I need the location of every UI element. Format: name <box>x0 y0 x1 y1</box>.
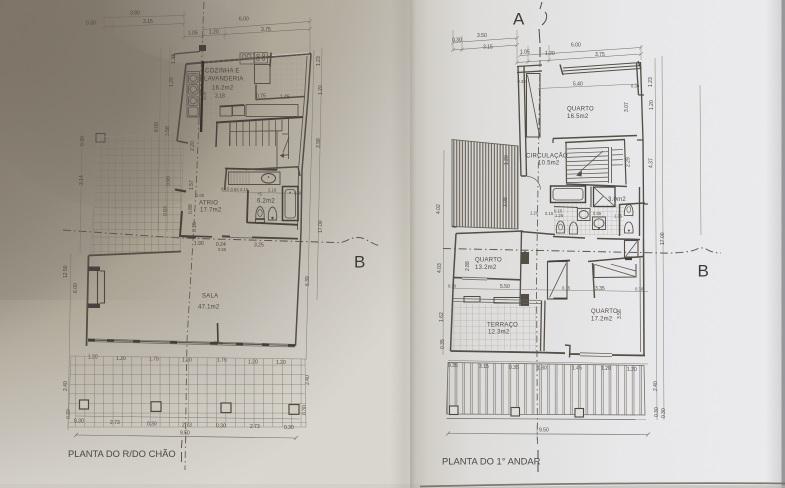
svg-text:12.3m2: 12.3m2 <box>488 330 510 336</box>
svg-text:3.25: 3.25 <box>254 243 264 249</box>
svg-text:QUARTO: QUARTO <box>567 107 594 113</box>
svg-text:3.56: 3.56 <box>617 309 623 319</box>
svg-text:3.05: 3.05 <box>202 91 207 100</box>
svg-text:2.18: 2.18 <box>268 188 277 193</box>
svg-text:COZINHA E: COZINHA E <box>205 69 240 75</box>
svg-text:0.30: 0.30 <box>216 423 226 429</box>
svg-text:3.0m2: 3.0m2 <box>608 197 626 203</box>
svg-text:0.30: 0.30 <box>86 21 96 27</box>
svg-text:2.88: 2.88 <box>465 261 471 271</box>
svg-text:+5: +5 <box>257 192 262 197</box>
svg-text:0.30: 0.30 <box>452 38 462 44</box>
svg-text:0.55: 0.55 <box>218 247 227 252</box>
svg-text:0.15: 0.15 <box>192 222 198 232</box>
svg-text:1.26: 1.26 <box>555 213 564 218</box>
svg-text:2.40: 2.40 <box>305 375 311 385</box>
svg-text:0.84: 0.84 <box>231 187 240 192</box>
svg-text:3.98: 3.98 <box>316 138 322 148</box>
svg-text:1.62: 1.62 <box>439 312 445 322</box>
svg-text:5.40: 5.40 <box>573 82 583 88</box>
svg-text:1.23: 1.23 <box>316 56 322 66</box>
svg-text:0.30: 0.30 <box>518 79 527 84</box>
svg-text:0.15: 0.15 <box>545 211 554 216</box>
svg-text:1.20: 1.20 <box>530 211 539 216</box>
svg-text:16.2m2: 16.2m2 <box>212 86 234 92</box>
svg-text:4.02: 4.02 <box>436 204 442 214</box>
svg-text:2.20: 2.20 <box>190 141 196 151</box>
svg-text:0.30: 0.30 <box>635 287 644 292</box>
svg-text:6.00: 6.00 <box>73 283 79 293</box>
svg-text:1.05: 1.05 <box>188 31 198 37</box>
svg-text:LAVANDERIA: LAVANDERIA <box>204 77 244 83</box>
svg-text:8.00: 8.00 <box>154 122 160 132</box>
svg-text:0.75: 0.75 <box>256 94 266 100</box>
svg-text:0.30: 0.30 <box>661 408 667 418</box>
svg-text:17.00: 17.00 <box>660 232 666 245</box>
svg-text:2.00: 2.00 <box>196 193 205 198</box>
svg-text:A: A <box>513 10 525 29</box>
svg-text:4.03: 4.03 <box>437 263 443 273</box>
svg-text:0.30: 0.30 <box>631 84 640 89</box>
svg-text:1.20: 1.20 <box>504 155 510 165</box>
svg-text:0.15: 0.15 <box>562 285 571 290</box>
svg-text:9.50: 9.50 <box>539 428 549 434</box>
svg-text:17.2m2: 17.2m2 <box>591 317 613 323</box>
svg-text:2.73: 2.73 <box>110 420 120 426</box>
svg-text:1.23: 1.23 <box>648 77 654 87</box>
svg-text:3.18: 3.18 <box>215 94 225 100</box>
svg-text:3.07: 3.07 <box>624 102 630 112</box>
svg-text:0.30: 0.30 <box>654 407 660 417</box>
svg-text:6.00: 6.00 <box>571 43 581 49</box>
svg-text:0.30: 0.30 <box>147 422 157 428</box>
svg-text:1.05: 1.05 <box>520 50 530 56</box>
svg-text:1.20: 1.20 <box>169 77 175 87</box>
svg-text:B: B <box>354 253 365 272</box>
svg-text:1.35: 1.35 <box>614 214 623 219</box>
svg-text:1.20: 1.20 <box>649 100 655 110</box>
svg-text:1.20: 1.20 <box>209 30 219 36</box>
svg-text:QUARTO: QUARTO <box>591 309 618 315</box>
svg-text:16.5m2: 16.5m2 <box>567 114 589 120</box>
svg-text:10.5m2: 10.5m2 <box>538 161 560 167</box>
svg-text:3.35: 3.35 <box>595 286 605 292</box>
svg-text:QUARTO: QUARTO <box>475 258 502 264</box>
svg-text:13.2m2: 13.2m2 <box>475 265 497 271</box>
svg-text:0.88: 0.88 <box>188 204 194 214</box>
svg-text:9.50: 9.50 <box>180 431 190 437</box>
svg-text:0.30: 0.30 <box>284 425 294 431</box>
svg-text:B: B <box>698 262 709 281</box>
svg-text:3.14: 3.14 <box>79 175 85 185</box>
svg-text:0.55: 0.55 <box>593 211 602 216</box>
svg-text:2.40: 2.40 <box>63 381 69 391</box>
svg-text:PLANTA DO R/DO CHÃO: PLANTA DO R/DO CHÃO <box>68 448 176 459</box>
svg-text:1.57: 1.57 <box>189 180 195 190</box>
svg-text:1.45: 1.45 <box>280 95 290 101</box>
svg-text:3.15: 3.15 <box>483 45 493 51</box>
svg-text:3.75: 3.75 <box>261 27 271 33</box>
svg-text:2.40: 2.40 <box>653 381 659 391</box>
svg-text:17.7m2: 17.7m2 <box>200 208 222 214</box>
svg-text:0.15: 0.15 <box>221 187 230 192</box>
svg-text:1.90: 1.90 <box>194 241 204 247</box>
svg-text:TERRAÇO: TERRAÇO <box>487 323 518 329</box>
svg-text:17.00: 17.00 <box>318 220 324 233</box>
svg-text:PLANTA DO 1° ANDAR: PLANTA DO 1° ANDAR <box>442 456 541 467</box>
svg-text:5.50: 5.50 <box>500 284 510 290</box>
svg-text:6.39: 6.39 <box>305 276 311 286</box>
svg-text:0.30: 0.30 <box>74 419 84 425</box>
svg-text:2.29: 2.29 <box>626 157 632 167</box>
svg-text:47.1m2: 47.1m2 <box>198 305 220 311</box>
svg-text:2.73: 2.73 <box>182 423 192 429</box>
svg-text:CIRCULAÇÃO: CIRCULAÇÃO <box>526 153 568 160</box>
svg-text:3.15: 3.15 <box>143 19 153 25</box>
svg-text:6.2m2: 6.2m2 <box>257 199 275 205</box>
svg-text:3.80: 3.80 <box>130 11 140 17</box>
svg-text:4.37: 4.37 <box>649 158 655 168</box>
svg-text:3.08: 3.08 <box>503 197 509 207</box>
svg-text:3.50: 3.50 <box>477 33 487 39</box>
svg-text:SALA: SALA <box>202 294 218 300</box>
svg-text:0.30: 0.30 <box>80 136 86 146</box>
svg-text:1.20: 1.20 <box>545 51 555 57</box>
svg-text:0.35: 0.35 <box>440 339 446 349</box>
svg-text:2.73: 2.73 <box>250 424 260 430</box>
svg-text:1.20: 1.20 <box>318 85 324 95</box>
svg-text:12.50: 12.50 <box>63 265 69 278</box>
svg-text:3.75: 3.75 <box>595 52 605 58</box>
svg-text:6.00: 6.00 <box>239 17 249 23</box>
svg-text:ATRIO: ATRIO <box>199 201 218 207</box>
